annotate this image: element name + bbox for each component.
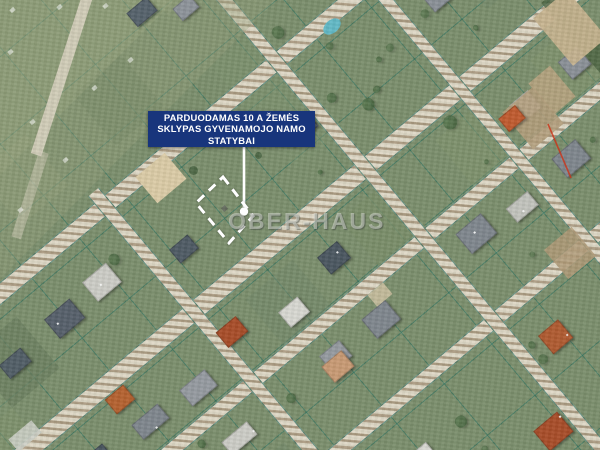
- satellite-map: OBER-HAUS PARDUODAMAS 10 A ŽEMĖS SKLYPAS…: [0, 0, 600, 450]
- callout-line-1: PARDUODAMAS 10 A ŽEMĖS: [164, 112, 299, 124]
- watermark: OBER-HAUS: [228, 208, 385, 235]
- callout-line-3: STATYBAI: [208, 135, 255, 147]
- callout-box: PARDUODAMAS 10 A ŽEMĖS SKLYPAS GYVENAMOJ…: [148, 111, 315, 147]
- red-cadastral-line: [548, 124, 571, 178]
- callout-line-2: SKLYPAS GYVENAMOJO NAMO: [157, 123, 305, 135]
